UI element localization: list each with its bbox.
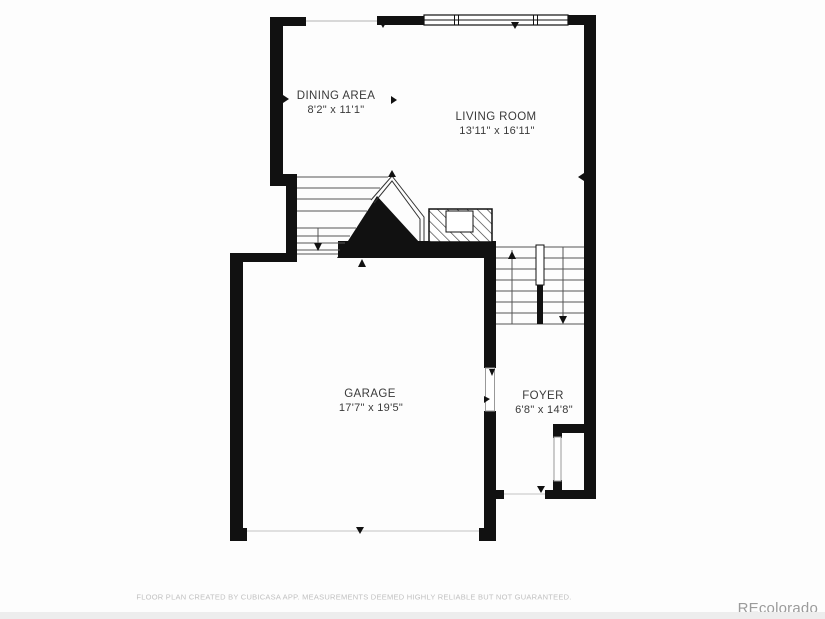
living-room-label: LIVING ROOM: [455, 111, 536, 123]
floor-plan-drawing: [0, 0, 825, 619]
closet-door: [554, 437, 561, 481]
marker-dining-living: [391, 96, 397, 104]
stairs-foyer-up-arrow: [508, 251, 516, 259]
openings: [247, 21, 561, 531]
marker-garage-top: [358, 259, 366, 267]
disclaimer-text: FLOOR PLAN CREATED BY CUBICASA APP. MEAS…: [136, 593, 571, 602]
garage-label: GARAGE: [344, 388, 396, 400]
marker-front-door: [537, 486, 545, 493]
floor-plan-image: DINING AREA 8'2" x 11'1" LIVING ROOM 13'…: [0, 0, 825, 619]
stair-hatched-area: [429, 209, 492, 242]
living-room-dimensions: 13'11" x 16'11": [459, 125, 534, 137]
marker-rail-apex: [388, 170, 396, 177]
garage-foyer-door: [486, 368, 495, 411]
marker-right-wall: [578, 173, 584, 181]
stairs-foyer-rail: [536, 245, 544, 324]
garage-dimensions: 17'7" x 19'5": [339, 402, 403, 414]
dining-area-label: DINING AREA: [297, 90, 376, 102]
dining-area-dimensions: 8'2" x 11'1": [308, 104, 365, 116]
foyer-dimensions: 6'8" x 14'8": [515, 404, 573, 416]
stair-solid-triangle: [337, 196, 420, 258]
foyer-label: FOYER: [522, 390, 564, 402]
bottom-edge-band: [0, 612, 825, 619]
marker-left-wall: [283, 95, 289, 103]
window: [424, 15, 568, 25]
stairs-foyer-down-arrow: [559, 316, 567, 324]
